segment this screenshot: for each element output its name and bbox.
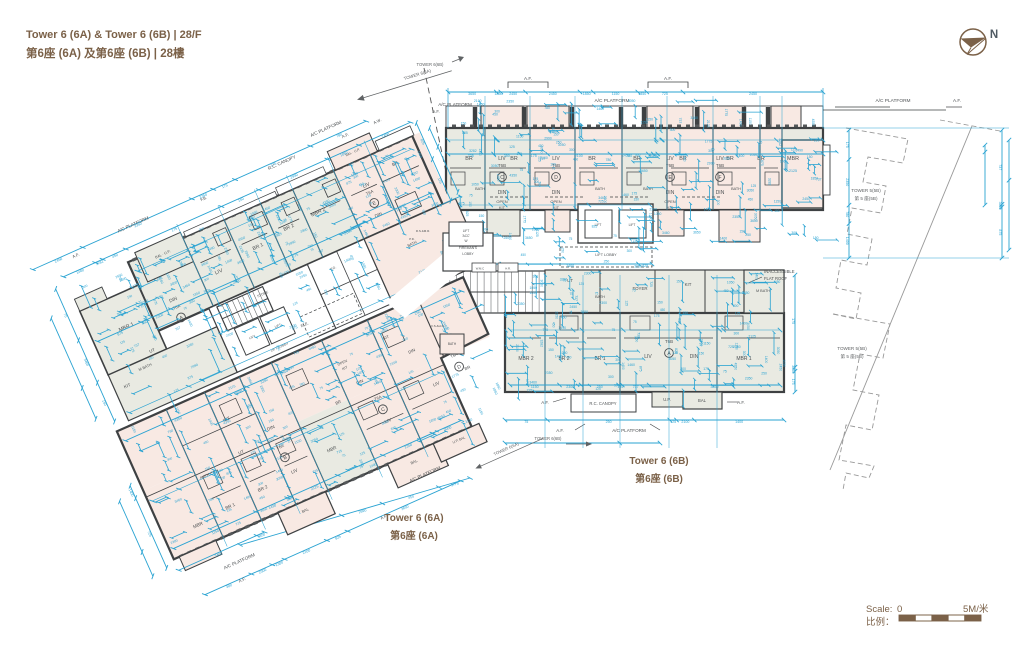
svg-text:FIREMAN'S: FIREMAN'S [459, 246, 478, 250]
svg-text:A/C PLATFORM: A/C PLATFORM [594, 98, 629, 104]
svg-text:1460: 1460 [627, 363, 635, 367]
svg-text:737: 737 [678, 118, 682, 124]
svg-text:2100: 2100 [515, 344, 519, 352]
svg-text:1850: 1850 [583, 92, 591, 96]
svg-text:KIT: KIT [685, 282, 692, 287]
svg-text:3650: 3650 [634, 264, 642, 268]
svg-text:125: 125 [533, 177, 539, 181]
svg-text:1400: 1400 [845, 237, 849, 245]
svg-text:75: 75 [569, 237, 573, 241]
svg-text:150: 150 [468, 201, 472, 207]
svg-text:875: 875 [998, 229, 1002, 235]
svg-text:300: 300 [670, 128, 676, 132]
svg-text:2300: 2300 [584, 272, 592, 276]
svg-text:5M/米: 5M/米 [963, 603, 989, 615]
svg-text:A.F.: A.F. [432, 109, 439, 114]
svg-text:175: 175 [654, 314, 660, 318]
svg-text:LIV: LIV [666, 156, 674, 162]
svg-text:150: 150 [813, 236, 819, 240]
svg-text:KIT: KIT [553, 205, 560, 210]
svg-text:3050: 3050 [753, 213, 757, 221]
svg-text:150: 150 [807, 155, 813, 159]
svg-text:A.F.: A.F. [664, 76, 672, 81]
svg-text:725: 725 [542, 328, 548, 332]
svg-text:300: 300 [627, 249, 633, 253]
svg-text:LIV: LIV [552, 156, 560, 162]
svg-text:450: 450 [775, 280, 781, 284]
svg-text:825: 825 [642, 264, 648, 268]
svg-text:INACCESSIBLE: INACCESSIBLE [764, 269, 795, 274]
svg-text:A/C PLATFORM: A/C PLATFORM [438, 102, 472, 107]
svg-text:300: 300 [733, 332, 739, 336]
svg-text:780: 780 [845, 211, 849, 217]
svg-text:OPEN: OPEN [550, 199, 561, 204]
svg-text:725: 725 [527, 389, 533, 393]
svg-text:2350: 2350 [732, 215, 740, 219]
svg-text:300: 300 [494, 110, 500, 114]
svg-text:737: 737 [998, 164, 1002, 170]
svg-text:第 5 座(5B): 第 5 座(5B) [841, 353, 864, 360]
svg-text:3050: 3050 [776, 347, 780, 355]
svg-text:150: 150 [548, 348, 554, 352]
svg-text:75: 75 [613, 234, 617, 238]
svg-text:75: 75 [552, 166, 556, 170]
svg-text:D: D [554, 175, 558, 181]
svg-text:DIN: DIN [552, 190, 561, 196]
svg-text:0: 0 [897, 604, 902, 615]
svg-text:2350: 2350 [554, 311, 558, 319]
svg-text:3050: 3050 [491, 164, 499, 168]
svg-text:75: 75 [632, 289, 636, 293]
svg-text:4350: 4350 [509, 174, 517, 178]
svg-text:3050: 3050 [628, 99, 636, 103]
svg-text:780: 780 [544, 106, 550, 110]
svg-text:2300: 2300 [649, 208, 657, 212]
svg-text:1775: 1775 [724, 109, 728, 117]
svg-text:300: 300 [608, 375, 614, 379]
svg-text:1150: 1150 [646, 117, 653, 121]
svg-text:150: 150 [699, 352, 705, 356]
svg-text:1050: 1050 [471, 183, 479, 187]
svg-text:Tower 6 (6A): Tower 6 (6A) [384, 513, 443, 524]
svg-text:737: 737 [698, 341, 702, 347]
svg-text:1400: 1400 [566, 264, 574, 268]
svg-text:P.D.: P.D. [409, 237, 415, 241]
svg-text:1150: 1150 [748, 118, 752, 125]
svg-text:875: 875 [760, 160, 764, 166]
svg-text:1400: 1400 [477, 102, 485, 106]
svg-text:250: 250 [761, 372, 767, 376]
svg-text:1460: 1460 [683, 154, 687, 162]
svg-text:A.F.: A.F. [953, 98, 961, 103]
svg-text:A/C PLATFORM: A/C PLATFORM [612, 428, 646, 433]
svg-text:3650: 3650 [998, 202, 1002, 210]
svg-text:300: 300 [742, 351, 746, 357]
svg-text:300: 300 [614, 383, 620, 387]
svg-text:125: 125 [791, 148, 797, 152]
svg-text:2300: 2300 [599, 301, 607, 305]
svg-text:75: 75 [633, 320, 637, 324]
svg-text:150: 150 [634, 198, 640, 202]
svg-text:450: 450 [551, 322, 555, 328]
svg-text:250: 250 [745, 233, 751, 237]
svg-text:1490: 1490 [496, 174, 500, 182]
svg-text:T6B: T6B [716, 163, 724, 168]
svg-text:R.C. CANOPY: R.C. CANOPY [589, 401, 616, 406]
svg-text:2125: 2125 [535, 229, 539, 237]
svg-text:2350: 2350 [506, 100, 514, 104]
svg-text:175: 175 [531, 154, 537, 158]
svg-text:2350: 2350 [733, 345, 741, 349]
svg-text:LIV: LIV [644, 354, 652, 360]
svg-text:450: 450 [521, 253, 527, 257]
svg-text:1400: 1400 [621, 362, 625, 370]
svg-text:75: 75 [723, 370, 727, 374]
svg-text:1490: 1490 [631, 240, 639, 244]
svg-text:825: 825 [592, 224, 598, 228]
svg-text:75: 75 [563, 278, 567, 282]
svg-text:3282: 3282 [469, 149, 477, 153]
svg-text:1490: 1490 [795, 149, 803, 153]
svg-text:DIN: DIN [690, 354, 699, 360]
svg-text:725: 725 [649, 281, 653, 287]
svg-text:1400: 1400 [740, 321, 748, 325]
svg-text:3282: 3282 [723, 156, 731, 160]
svg-text:1150: 1150 [774, 200, 781, 204]
svg-text:3650: 3650 [693, 231, 701, 235]
svg-text:1460: 1460 [621, 193, 629, 197]
svg-text:175: 175 [516, 152, 522, 156]
svg-text:2350: 2350 [517, 302, 525, 306]
svg-text:MBR: MBR [787, 156, 799, 162]
svg-text:第 5 座(5B): 第 5 座(5B) [855, 195, 878, 202]
svg-text:2450: 2450 [570, 305, 578, 309]
svg-text:150: 150 [676, 279, 682, 283]
svg-text:BATH: BATH [731, 187, 741, 191]
svg-text:2450: 2450 [802, 197, 810, 201]
svg-text:825: 825 [677, 318, 681, 324]
svg-text:1050: 1050 [654, 212, 662, 216]
svg-text:3282: 3282 [539, 340, 543, 348]
svg-text:875: 875 [459, 201, 465, 205]
svg-text:175: 175 [845, 142, 849, 148]
svg-text:450: 450 [573, 158, 579, 162]
svg-text:2100: 2100 [540, 156, 548, 160]
svg-text:F: F [718, 175, 721, 181]
svg-text:3460: 3460 [690, 116, 698, 120]
svg-text:2300: 2300 [603, 196, 607, 204]
svg-text:1400: 1400 [735, 420, 743, 424]
svg-text:125: 125 [625, 300, 629, 306]
svg-text:DIN: DIN [716, 190, 725, 196]
svg-text:300: 300 [533, 275, 539, 279]
svg-text:4350: 4350 [734, 363, 738, 371]
svg-text:450: 450 [723, 289, 729, 293]
svg-text:比例：: 比例： [866, 616, 895, 628]
svg-text:2450: 2450 [549, 92, 557, 96]
svg-text:2990: 2990 [544, 136, 552, 140]
svg-text:825: 825 [462, 131, 468, 135]
svg-text:125: 125 [735, 312, 741, 316]
svg-text:LOBBY: LOBBY [462, 252, 474, 256]
svg-text:3282: 3282 [768, 178, 772, 186]
svg-text:1490: 1490 [558, 326, 566, 330]
svg-text:825: 825 [551, 128, 555, 134]
svg-text:150: 150 [560, 247, 564, 253]
svg-text:2450: 2450 [622, 153, 630, 157]
svg-text:TOWER 5(5B): TOWER 5(5B) [851, 188, 881, 193]
svg-text:TOWER 6(6B): TOWER 6(6B) [417, 62, 445, 67]
svg-text:R.S.&M.R.: R.S.&M.R. [416, 229, 430, 233]
svg-text:1400: 1400 [720, 236, 728, 240]
svg-text:1460: 1460 [739, 119, 743, 127]
svg-text:3460: 3460 [662, 231, 670, 235]
svg-text:A/C PLATFORM: A/C PLATFORM [875, 98, 910, 104]
svg-text:N: N [990, 29, 998, 41]
svg-text:150: 150 [740, 229, 746, 233]
svg-text:300: 300 [569, 148, 575, 152]
svg-text:1050: 1050 [727, 280, 735, 284]
svg-text:250: 250 [814, 139, 820, 143]
svg-text:2125: 2125 [748, 334, 756, 338]
svg-text:450: 450 [660, 308, 666, 312]
svg-text:2450: 2450 [509, 92, 517, 96]
svg-text:1150: 1150 [612, 92, 620, 96]
svg-text:KIT: KIT [499, 205, 506, 210]
svg-text:780: 780 [606, 158, 612, 162]
svg-text:150: 150 [479, 214, 485, 218]
svg-text:1400: 1400 [736, 154, 744, 158]
svg-text:'ACC': 'ACC' [462, 234, 470, 238]
svg-text:A.F.: A.F. [524, 76, 532, 81]
svg-text:第6座 (6B): 第6座 (6B) [635, 472, 683, 485]
svg-text:Tower 6 (6A) & Tower 6 (6B) |: Tower 6 (6A) & Tower 6 (6B) | 28/F [26, 29, 202, 41]
svg-text:第6座 (6A) 及第6座 (6B) | 28樓: 第6座 (6A) 及第6座 (6B) | 28樓 [26, 46, 185, 60]
svg-text:2125: 2125 [789, 169, 797, 173]
svg-text:175: 175 [791, 379, 795, 385]
svg-text:1400: 1400 [754, 272, 758, 280]
svg-text:3460: 3460 [529, 381, 537, 385]
svg-text:2990: 2990 [707, 161, 715, 165]
svg-text:2350: 2350 [545, 371, 553, 375]
svg-text:1775: 1775 [522, 216, 526, 224]
svg-text:737: 737 [636, 332, 640, 338]
svg-text:250: 250 [504, 154, 510, 158]
svg-text:1775: 1775 [705, 140, 713, 144]
svg-text:1400: 1400 [555, 355, 563, 359]
svg-text:75: 75 [595, 292, 599, 296]
svg-text:150: 150 [774, 209, 780, 213]
svg-text:LIFT: LIFT [463, 229, 470, 233]
svg-text:1050: 1050 [530, 291, 538, 295]
svg-text:1400: 1400 [764, 356, 768, 364]
svg-text:W: W [464, 239, 467, 243]
svg-text:825: 825 [674, 348, 678, 354]
svg-text:450: 450 [538, 144, 544, 148]
svg-text:75: 75 [524, 420, 528, 424]
svg-text:175: 175 [703, 367, 709, 371]
svg-text:BATH: BATH [475, 187, 485, 191]
svg-text:300: 300 [716, 200, 720, 206]
svg-text:300: 300 [635, 153, 641, 157]
svg-text:300: 300 [615, 358, 621, 362]
svg-text:2350: 2350 [745, 376, 753, 380]
svg-text:300: 300 [681, 367, 687, 371]
svg-text:300: 300 [791, 231, 797, 235]
svg-text:175: 175 [791, 318, 795, 324]
svg-text:M BATH: M BATH [756, 289, 770, 293]
svg-text:1150: 1150 [516, 134, 523, 138]
svg-text:300: 300 [733, 304, 739, 308]
svg-text:W.M.C: W.M.C [476, 267, 484, 271]
svg-text:LIFT: LIFT [629, 223, 636, 227]
svg-text:LIFT LOBBY: LIFT LOBBY [595, 253, 617, 257]
svg-text:1460: 1460 [704, 208, 712, 212]
svg-text:75: 75 [570, 292, 574, 296]
svg-text:Scale:: Scale: [866, 604, 892, 615]
svg-text:150: 150 [682, 311, 688, 315]
svg-text:4350: 4350 [811, 119, 815, 127]
svg-text:BAL: BAL [698, 398, 707, 403]
svg-text:BR: BR [510, 156, 518, 162]
svg-text:1850: 1850 [638, 92, 646, 96]
svg-text:150: 150 [657, 301, 663, 305]
svg-text:第6座 (6A): 第6座 (6A) [390, 529, 438, 542]
svg-text:3282: 3282 [778, 138, 782, 146]
svg-text:250: 250 [503, 236, 509, 240]
svg-text:BATH: BATH [448, 342, 457, 346]
svg-text:125: 125 [509, 145, 515, 149]
svg-text:BATH: BATH [595, 187, 605, 191]
svg-text:A.F.: A.F. [556, 428, 564, 433]
svg-text:75: 75 [612, 328, 616, 332]
svg-text:3650: 3650 [468, 92, 476, 96]
svg-text:2350: 2350 [742, 291, 750, 295]
svg-text:1050: 1050 [530, 286, 538, 290]
svg-text:725: 725 [598, 200, 604, 204]
svg-text:3050: 3050 [669, 357, 677, 361]
svg-text:2100: 2100 [681, 420, 689, 424]
svg-text:1850: 1850 [495, 92, 503, 96]
svg-text:250: 250 [606, 420, 612, 424]
svg-text:75: 75 [569, 310, 573, 314]
svg-text:Tower 6 (6B): Tower 6 (6B) [629, 456, 688, 467]
svg-text:737: 737 [574, 295, 578, 301]
svg-text:OPEN: OPEN [496, 199, 507, 204]
svg-text:1050: 1050 [782, 359, 786, 367]
svg-text:825: 825 [465, 211, 469, 217]
svg-text:3650: 3650 [791, 365, 795, 373]
svg-text:MBR 2: MBR 2 [518, 356, 534, 362]
svg-text:1460: 1460 [597, 107, 605, 111]
svg-text:75: 75 [469, 194, 473, 198]
svg-text:125: 125 [595, 387, 601, 391]
svg-text:2450: 2450 [749, 92, 757, 96]
svg-text:H.R.: H.R. [505, 267, 511, 271]
svg-text:875: 875 [638, 366, 642, 372]
svg-text:F.S.&H.R.: F.S.&H.R. [431, 324, 444, 328]
svg-text:175: 175 [631, 191, 637, 195]
svg-text:U.P.: U.P. [663, 397, 671, 402]
svg-text:75: 75 [759, 140, 763, 144]
svg-text:1150: 1150 [478, 148, 482, 155]
svg-text:3050: 3050 [747, 189, 755, 193]
svg-text:75: 75 [520, 168, 524, 172]
svg-text:125: 125 [751, 184, 757, 188]
svg-text:725: 725 [662, 92, 668, 96]
svg-text:1460: 1460 [559, 316, 567, 320]
svg-text:450: 450 [566, 356, 572, 360]
svg-text:BR: BR [588, 156, 596, 162]
svg-text:725: 725 [468, 154, 474, 158]
svg-text:300: 300 [708, 149, 714, 153]
svg-text:3650: 3650 [581, 310, 589, 314]
svg-text:450: 450 [748, 198, 754, 202]
svg-text:TOWER 5(5B): TOWER 5(5B) [837, 346, 867, 351]
svg-text:125: 125 [579, 282, 585, 286]
svg-text:1460: 1460 [780, 160, 788, 164]
svg-text:1850: 1850 [811, 177, 819, 181]
svg-text:150: 150 [461, 122, 467, 126]
svg-text:250: 250 [604, 260, 610, 264]
svg-text:2125: 2125 [706, 120, 710, 128]
svg-text:DIN: DIN [498, 190, 507, 196]
svg-text:3650: 3650 [640, 169, 648, 173]
svg-text:250: 250 [556, 140, 562, 144]
svg-text:T6B: T6B [498, 163, 506, 168]
svg-text:1050: 1050 [750, 153, 758, 157]
svg-text:OPEN: OPEN [664, 199, 675, 204]
svg-text:A.F.: A.F. [737, 400, 745, 405]
svg-text:3650: 3650 [525, 236, 533, 240]
svg-text:1050: 1050 [648, 213, 652, 221]
svg-text:3050: 3050 [539, 280, 543, 288]
svg-text:2350: 2350 [845, 178, 849, 186]
svg-text:125: 125 [670, 420, 676, 424]
